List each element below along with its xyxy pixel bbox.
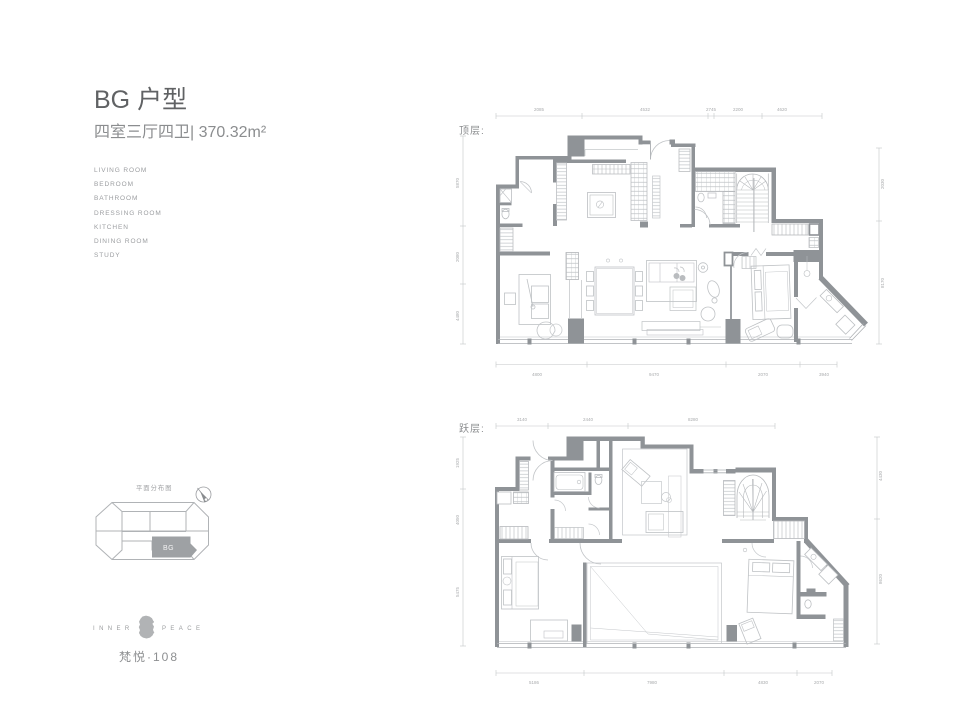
svg-text:2070: 2070 — [814, 680, 825, 685]
svg-text:BG: BG — [163, 545, 174, 552]
svg-text:4050: 4050 — [455, 514, 460, 525]
svg-text:1925: 1925 — [455, 457, 460, 468]
svg-text:2440: 2440 — [583, 417, 594, 422]
svg-text:顶层:: 顶层: — [459, 125, 485, 137]
svg-text:5475: 5475 — [455, 586, 460, 597]
svg-text:2200: 2200 — [733, 107, 744, 112]
svg-text:4430: 4430 — [878, 470, 883, 481]
svg-text:3140: 3140 — [517, 417, 528, 422]
svg-text:8280: 8280 — [688, 417, 699, 422]
svg-text:4480: 4480 — [455, 310, 460, 321]
svg-text:平面分布图: 平面分布图 — [136, 483, 172, 492]
svg-text:跃层:: 跃层: — [459, 423, 485, 435]
svg-text:2070: 2070 — [758, 372, 769, 377]
svg-text:7980: 7980 — [647, 680, 658, 685]
svg-text:PEACE: PEACE — [162, 626, 204, 632]
svg-text:9470: 9470 — [649, 372, 660, 377]
svg-text:2085: 2085 — [534, 107, 545, 112]
svg-text:8170: 8170 — [880, 277, 885, 288]
svg-text:3940: 3940 — [819, 372, 830, 377]
svg-text:5186: 5186 — [529, 680, 540, 685]
svg-text:梵悦·108: 梵悦·108 — [119, 650, 179, 664]
svg-text:2030: 2030 — [880, 178, 885, 189]
svg-text:4830: 4830 — [758, 680, 769, 685]
svg-text:4800: 4800 — [532, 372, 543, 377]
svg-text:8620: 8620 — [878, 573, 883, 584]
svg-text:5870: 5870 — [455, 177, 460, 188]
svg-text:2745: 2745 — [706, 107, 717, 112]
svg-text:2080: 2080 — [455, 251, 460, 262]
svg-text:4620: 4620 — [777, 107, 788, 112]
svg-text:INNER: INNER — [93, 626, 134, 632]
svg-text:4532: 4532 — [640, 107, 651, 112]
